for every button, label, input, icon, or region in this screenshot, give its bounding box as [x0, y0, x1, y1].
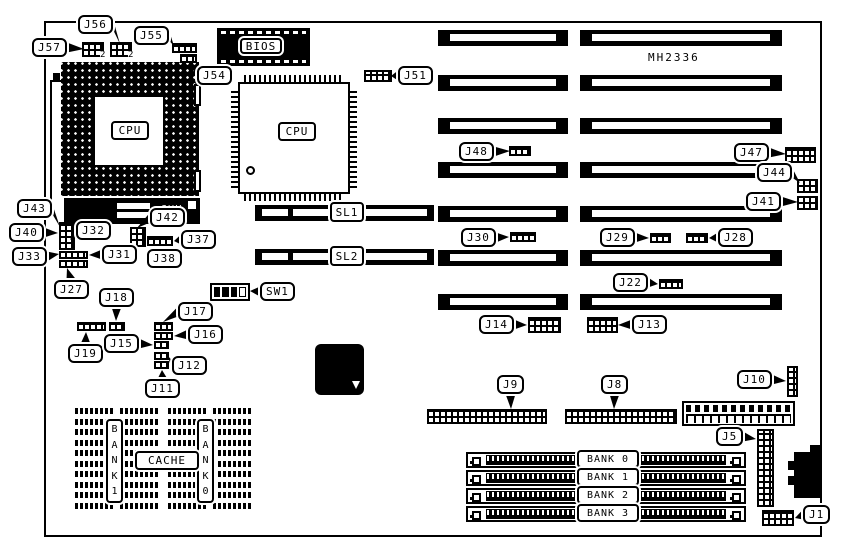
simm-bank-label: BANK 3 — [577, 504, 639, 522]
simm-bank-label: BANK 2 — [577, 486, 639, 504]
callout-j33: J33 — [12, 247, 47, 266]
callout-j31: J31 — [102, 245, 137, 264]
pin-header — [787, 366, 798, 397]
pin-header — [59, 260, 88, 268]
callout-j56: J56 — [78, 15, 113, 34]
callout-j38: J38 — [147, 249, 182, 268]
simm-latch-right — [729, 491, 743, 501]
simm-latch-left — [469, 473, 483, 483]
qfp-pin1-dot — [246, 166, 255, 175]
callout-j43: J43 — [17, 199, 52, 218]
callout-j19: J19 — [68, 344, 103, 363]
pin-header — [757, 429, 774, 507]
sl1-label: SL1 — [330, 202, 364, 222]
callout-j40: J40 — [9, 223, 44, 242]
pin-header — [587, 317, 618, 333]
dip-switch-cell — [231, 287, 237, 297]
callout-j32: J32 — [76, 221, 111, 240]
isa-slot-segment — [438, 30, 568, 46]
cache-chip — [211, 408, 252, 425]
callout-j22: J22 — [613, 273, 648, 292]
callout-sw1: SW1 — [260, 282, 295, 301]
isa-slot-segment — [580, 162, 782, 178]
dip-switch-cell — [239, 287, 246, 297]
socket-tab — [194, 170, 201, 192]
simm-bank-label: BANK 1 — [577, 468, 639, 486]
simm-bank-label: BANK 0 — [577, 450, 639, 468]
callout-j14: J14 — [479, 315, 514, 334]
chipset-pin1-mark — [352, 381, 360, 389]
socket-tab — [194, 84, 201, 106]
pin-header — [797, 179, 818, 193]
simm-latch-left — [469, 491, 483, 501]
cache-chip — [211, 429, 252, 446]
power-connector — [682, 401, 795, 426]
pin-header — [180, 54, 197, 63]
pin-header — [565, 409, 677, 424]
pin-header — [172, 43, 197, 53]
dip-switch-cell — [214, 287, 220, 297]
callout-j9: J9 — [497, 375, 524, 394]
amd-chip-mark — [188, 201, 196, 209]
simm-latch-right — [729, 473, 743, 483]
isa-slot-segment — [438, 118, 568, 134]
pin-header — [154, 341, 169, 349]
sl2-label: SL2 — [330, 246, 364, 266]
callout-j54: J54 — [197, 66, 232, 85]
power-connector-hooks — [686, 405, 791, 412]
model-label: MH2336 — [648, 51, 728, 64]
qfp-pins-bottom — [244, 194, 344, 201]
pin-header — [109, 322, 125, 331]
cache-bank1-label: B A N K 1 — [106, 419, 123, 503]
callout-j51: J51 — [398, 66, 433, 85]
pin-header — [785, 147, 816, 163]
chipset-chip — [315, 344, 364, 395]
cache-chip — [211, 471, 252, 488]
callout-j8: J8 — [601, 375, 628, 394]
socket-tab — [53, 73, 60, 81]
pin-header — [510, 232, 536, 242]
callout-j48: J48 — [459, 142, 494, 161]
dip-switch-cell — [222, 287, 228, 297]
pin-header — [154, 332, 173, 340]
pin-header — [130, 227, 146, 247]
isa-slot-segment — [580, 250, 782, 266]
callout-j10: J10 — [737, 370, 772, 389]
callout-j41: J41 — [746, 192, 781, 211]
callout-j16: J16 — [188, 325, 223, 344]
callout-j29: J29 — [600, 228, 635, 247]
pin-header — [528, 317, 561, 333]
cache-chip — [118, 408, 159, 425]
cache-chip — [211, 450, 252, 467]
callout-j28: J28 — [718, 228, 753, 247]
amd-chip-window — [117, 203, 150, 209]
callout-j42: J42 — [150, 208, 185, 227]
power-connector-pins — [686, 414, 791, 423]
bios-label: BIOS — [240, 38, 282, 54]
cache-bank0-label: B A N K 0 — [197, 419, 214, 503]
callout-j27: J27 — [54, 280, 89, 299]
callout-j12: J12 — [172, 356, 207, 375]
isa-slot-segment — [580, 30, 782, 46]
callout-j30: J30 — [461, 228, 496, 247]
callout-j18: J18 — [99, 288, 134, 307]
callout-j11: J11 — [145, 379, 180, 398]
simm-latch-left — [469, 509, 483, 519]
pin2-marker: 2 — [100, 51, 105, 60]
isa-slot-segment — [438, 206, 568, 222]
qfp-pins-top — [244, 75, 344, 82]
pin-header — [59, 222, 75, 250]
callout-j17: J17 — [178, 302, 213, 321]
keyboard-connector — [794, 452, 822, 498]
isa-slot-segment — [438, 250, 568, 266]
pin2-marker: 2 — [128, 51, 133, 60]
callout-j57: J57 — [32, 38, 67, 57]
callout-j15: J15 — [104, 334, 139, 353]
dip-switch-sw1 — [210, 283, 250, 301]
bios-chip-pins — [221, 31, 306, 34]
pin-header — [509, 146, 531, 156]
callout-j5: J5 — [716, 427, 743, 446]
callout-j55: J55 — [134, 26, 169, 45]
pin-header — [77, 322, 106, 331]
isa-slot-segment — [580, 75, 782, 91]
callout-j44: J44 — [757, 163, 792, 182]
pin-header — [154, 352, 169, 360]
isa-slot-segment — [438, 294, 568, 310]
pin-header — [797, 196, 818, 210]
bios-chip-pins — [221, 60, 306, 63]
cache-chip — [118, 471, 159, 488]
pga-cpu-label: CPU — [111, 121, 149, 140]
motherboard-diagram: MH2336 CPU AMD BIOS CPU SL1 SL2 — [0, 0, 842, 544]
cache-label: CACHE — [135, 451, 199, 470]
simm-latch-right — [729, 509, 743, 519]
simm-latch-left — [469, 455, 483, 465]
pin-header — [762, 510, 794, 526]
isa-slot-segment — [438, 75, 568, 91]
pin-header — [154, 322, 173, 331]
isa-slot-segment — [580, 294, 782, 310]
callout-j1: J1 — [803, 505, 830, 524]
simm-latch-right — [729, 455, 743, 465]
cache-chip — [118, 492, 159, 509]
amd-chip-window — [117, 212, 150, 218]
cache-chip — [118, 429, 159, 446]
pin-header — [147, 236, 173, 246]
pin-header — [659, 279, 683, 289]
isa-slot-segment — [580, 118, 782, 134]
pin-header — [427, 409, 547, 424]
socket-bracket — [50, 80, 52, 200]
callout-j37: J37 — [181, 230, 216, 249]
pin-header — [650, 233, 671, 243]
qfp-pins-right — [350, 88, 357, 188]
cache-chip — [211, 492, 252, 509]
pin-header — [364, 70, 392, 82]
pin-header — [686, 233, 708, 243]
pin-header — [154, 361, 169, 369]
callout-j47: J47 — [734, 143, 769, 162]
qfp-pins-left — [231, 88, 238, 188]
isa-slot-segment — [438, 162, 568, 178]
pin-header — [59, 251, 88, 259]
qfp-cpu-label: CPU — [278, 122, 316, 141]
callout-j13: J13 — [632, 315, 667, 334]
